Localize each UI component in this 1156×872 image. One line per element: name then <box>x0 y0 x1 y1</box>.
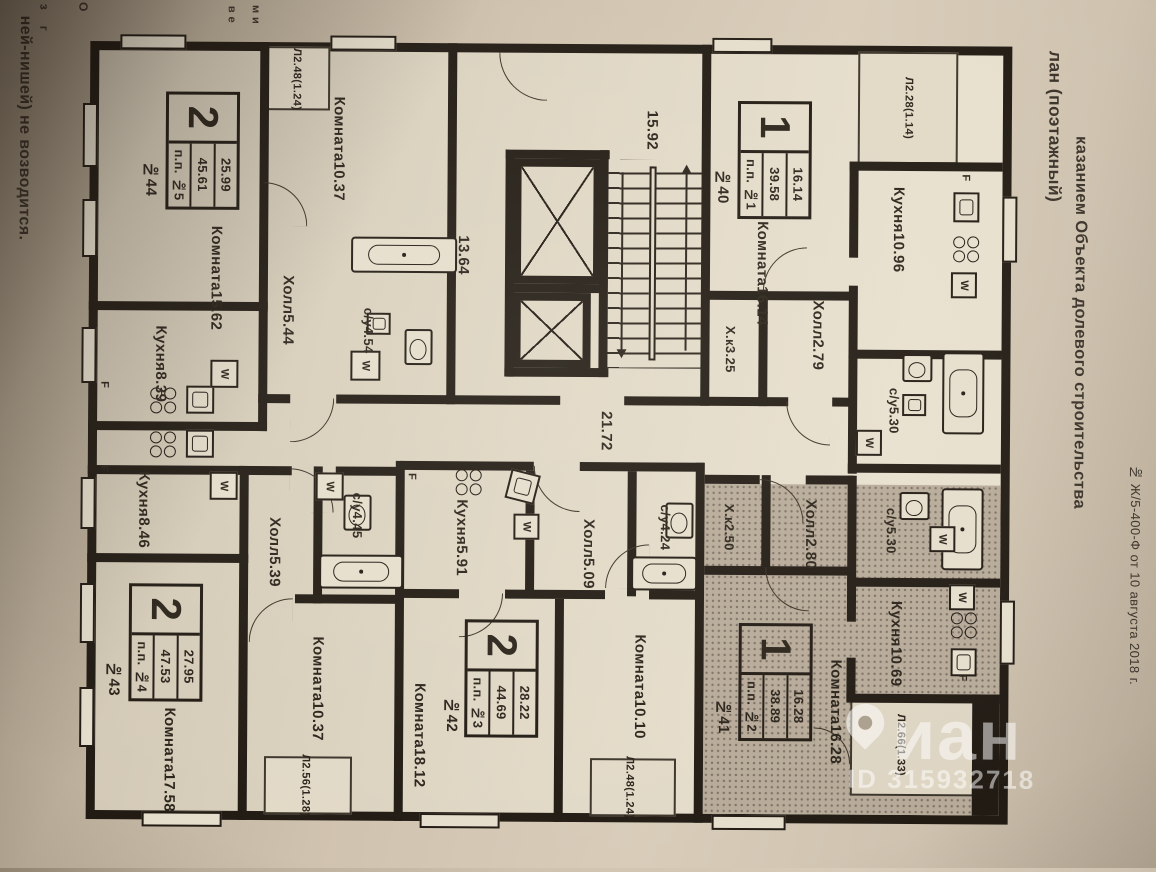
room-name: Комната <box>409 683 429 748</box>
balcony-letter: Л <box>622 756 635 764</box>
wall <box>850 162 1003 172</box>
apartment-badge-a40: 1 п.п. №1 39.58 16.14 <box>737 101 812 219</box>
wall <box>258 394 290 403</box>
cut-text-fragment: О <box>75 0 91 17</box>
lift-hall-area-label: 13.64 <box>451 221 475 289</box>
hall-label: Холл 5.39 <box>255 516 293 588</box>
room-area: 2.79 <box>808 340 828 371</box>
room-name: с/у <box>882 508 899 527</box>
balcony-label: Л 2.48 (1.24) <box>270 50 322 108</box>
fridge-icon: F <box>956 674 968 681</box>
room-name: Комната <box>752 221 772 286</box>
corridor-area-label: 21.72 <box>594 398 618 464</box>
bathtub <box>942 352 985 434</box>
room-name: с/у <box>348 493 365 512</box>
bathroom-label: с/у 4.54 <box>350 299 384 363</box>
apartment-badge-a42: 2 п.п. №3 44.69 28.22 <box>464 619 539 737</box>
room-area: 4.24 <box>656 524 673 551</box>
room-area: 10.37 <box>307 701 327 741</box>
room-name: Комната <box>206 225 226 290</box>
room-area: 18.12 <box>409 748 429 788</box>
room-label: Комната 10.37 <box>296 638 339 738</box>
room-label: Комната 15.62 <box>195 232 238 324</box>
washer-icon: W <box>929 526 955 552</box>
document-heading-line1: лан (поэтажный) <box>1041 3 1069 251</box>
room-area: 10.96 <box>888 233 908 273</box>
wall <box>505 590 605 600</box>
wall <box>849 162 859 258</box>
room-name: Кухня <box>151 325 171 371</box>
badge-total-area: 45.61 <box>190 144 214 207</box>
washer-icon: W <box>951 272 977 298</box>
room-name: Холл <box>578 519 598 558</box>
room-name: с/у <box>656 504 673 523</box>
elevator-shaft-small <box>512 293 590 368</box>
document-heading-line2: казанием Объекта долевого строительства <box>1065 3 1095 643</box>
bathtub <box>351 237 457 274</box>
room-area: 2.80 <box>800 539 820 570</box>
apartment-number-a40: №40 <box>709 153 735 219</box>
fridge-icon: F <box>960 174 972 181</box>
hall-label: Холл 5.44 <box>269 274 307 346</box>
room-name: Кухня <box>888 187 908 233</box>
badge-total-area: 47.53 <box>153 635 177 698</box>
balcony-label: Л 2.56 (1.28) <box>282 758 328 812</box>
wall <box>295 594 399 604</box>
badge-rooms-count: 1 <box>741 104 809 153</box>
balcony-coef: (1.24) <box>289 79 302 110</box>
fridge-icon: F <box>98 465 110 472</box>
kitchen-label: Кухня 8.46 <box>123 469 163 549</box>
apartment-badge-a41: 1 п.п. №2 38.89 16.28 <box>738 623 813 741</box>
room-name: Холл <box>264 517 284 556</box>
hall-label: Холл 2.79 <box>798 299 836 371</box>
window-mark <box>82 199 97 257</box>
room-name: Кухня <box>886 601 906 647</box>
room-name: Холл <box>808 300 828 339</box>
hall-label: Холл 5.09 <box>569 518 607 590</box>
kitchen-sink <box>186 386 214 414</box>
badge-total-area: 39.58 <box>762 153 786 216</box>
room-name: Кухня <box>134 471 154 517</box>
room-area: 2.50 <box>720 523 737 550</box>
room-area: 5.44 <box>278 314 298 345</box>
badge-unit: п.п. №2 <box>741 675 763 738</box>
badge-unit: п.п. №5 <box>168 143 190 206</box>
wall <box>504 368 608 378</box>
pantry-label: Х.к 2.50 <box>709 493 747 561</box>
room-area: 5.30 <box>882 527 899 554</box>
apartment-badge-a44: 2 п.п. №5 45.61 25.99 <box>165 91 240 209</box>
floor-plan-photo: W W W W W W W W W F F F F F 2 п.п. №5 45… <box>0 0 1156 872</box>
badge-total-area: 44.69 <box>488 671 512 734</box>
fridge-icon: F <box>98 381 110 388</box>
apartment-number-a41: №41 <box>710 683 736 749</box>
cut-text-fragment: м и <box>248 0 262 32</box>
hall-label: Холл 2.80 <box>791 499 829 569</box>
room-label: Комната 17.58 <box>148 709 191 809</box>
bathroom-label: с/у 5.30 <box>876 378 910 444</box>
room-area: 17.58 <box>159 772 179 812</box>
wall <box>87 553 248 563</box>
room-name: Х.к <box>720 503 737 523</box>
window-mark <box>712 38 772 53</box>
fridge-icon: F <box>406 473 418 480</box>
balcony-letter: Л <box>290 48 303 56</box>
wall <box>399 589 459 598</box>
balcony-coef: (1.24) <box>622 787 635 818</box>
cut-text-fragment: г <box>36 21 50 37</box>
window-mark <box>81 327 96 383</box>
room-area: 16.14 <box>752 286 772 326</box>
wall <box>336 467 400 476</box>
washer-icon: W <box>210 360 238 388</box>
window-mark <box>80 583 95 643</box>
room-name: Кухня <box>452 499 472 545</box>
wall <box>806 475 854 484</box>
balcony-area: 2.28 <box>901 85 914 108</box>
room-name: Комната <box>825 659 845 724</box>
apartment-number-a44: №44 <box>137 145 163 211</box>
wall <box>336 395 560 405</box>
cut-text-fragment: з <box>37 0 51 15</box>
wall <box>847 476 857 622</box>
pantry-label: Х.к 3.25 <box>710 315 748 383</box>
window-mark <box>330 35 396 50</box>
apartment-number-a43: №43 <box>100 645 126 711</box>
wall <box>554 599 564 822</box>
room-name: Х.к <box>721 325 738 345</box>
room-label: Комната 16.14 <box>741 227 784 319</box>
room-name: с/у <box>359 308 376 327</box>
badge-unit: п.п. №4 <box>131 635 153 698</box>
elevator-shaft-large <box>513 159 602 285</box>
room-area: 10.10 <box>629 699 649 739</box>
window-mark <box>1000 601 1015 665</box>
room-area: 10.37 <box>329 161 349 201</box>
window-mark <box>83 103 98 167</box>
bathroom-label: с/у 5.30 <box>873 498 907 564</box>
room-area: 4.45 <box>348 512 365 539</box>
room-name: с/у <box>885 388 902 407</box>
bathtub <box>631 556 697 590</box>
room-label: Комната 18.12 <box>398 663 441 807</box>
room-area: 3.25 <box>721 345 738 372</box>
window-mark <box>79 687 94 747</box>
badge-living-area: 25.99 <box>213 144 237 207</box>
kitchen-sink <box>951 648 977 676</box>
room-name: Комната <box>329 96 349 161</box>
room-area: 15.62 <box>206 291 226 331</box>
wall <box>89 301 268 311</box>
toilet <box>404 329 432 365</box>
room-area: 5.30 <box>885 407 902 434</box>
washer-icon: W <box>513 514 539 540</box>
room-label: Комната 10.37 <box>317 102 360 194</box>
window-mark <box>1002 197 1017 263</box>
cut-text-fragment: в е <box>224 0 238 32</box>
room-area: 16.28 <box>825 724 845 764</box>
room-label: Комната 10.10 <box>618 634 661 738</box>
room-area: 8.39 <box>150 371 170 402</box>
wall <box>88 421 267 431</box>
room-name: Комната <box>630 634 650 699</box>
window-mark <box>142 811 222 826</box>
stove-icon <box>953 236 979 262</box>
badge-rooms-count: 2 <box>132 586 200 635</box>
balcony-coef: (1.14) <box>901 108 914 139</box>
room-area: 5.91 <box>451 545 471 576</box>
balcony-letter: Л <box>298 754 311 762</box>
badge-rooms-count: 2 <box>468 622 536 671</box>
room-name: Комната <box>159 707 179 772</box>
apartment-number-a42: №42 <box>438 681 464 747</box>
balcony-area: 2.56 <box>298 762 311 785</box>
balcony-area: 2.48 <box>290 56 303 79</box>
kitchen-label: Кухня 10.69 <box>874 600 917 688</box>
wall <box>88 465 292 475</box>
badge-unit: п.п. №3 <box>467 671 489 734</box>
badge-unit: п.п. №1 <box>740 153 762 216</box>
wall <box>848 464 1001 474</box>
wall <box>704 397 788 407</box>
kitchen-label: Кухня 5.91 <box>441 497 481 577</box>
wall <box>259 42 270 310</box>
badge-rooms-count: 1 <box>742 626 810 675</box>
balcony-coef: (1.28) <box>298 785 311 816</box>
balcony-area: 2.48 <box>622 764 635 787</box>
badge-living-area: 28.22 <box>512 672 536 735</box>
kitchen-sink <box>186 430 214 458</box>
stair-rail <box>648 166 656 360</box>
room-name: Комната <box>308 636 328 701</box>
washer-icon: W <box>210 472 238 500</box>
badge-rooms-count: 2 <box>169 94 237 143</box>
bathroom-label: с/у 4.45 <box>339 483 373 549</box>
balcony-letter: Л <box>902 77 915 85</box>
kitchen-label: Кухня 8.39 <box>140 325 180 401</box>
room-name: Холл <box>801 499 821 538</box>
badge-living-area: 16.28 <box>786 675 810 738</box>
room-area: 8.46 <box>134 517 154 548</box>
wall <box>258 310 268 431</box>
bathroom-label: с/у 4.24 <box>647 494 681 560</box>
wall <box>624 396 704 405</box>
watermark-brand: иан <box>892 700 1023 771</box>
stove-icon <box>150 431 176 457</box>
room-area: 10.69 <box>886 647 906 687</box>
balcony-label: Л 2.28 (1.14) <box>882 78 934 138</box>
badge-living-area: 16.14 <box>785 153 809 216</box>
window-mark <box>712 815 786 830</box>
kitchen-label: Кухня 10.96 <box>877 186 920 274</box>
wall <box>847 578 1000 588</box>
stairwell-area-label: 15.92 <box>640 96 664 164</box>
window-mark <box>80 477 95 529</box>
room-area: 5.09 <box>578 558 598 589</box>
window-mark <box>120 34 186 49</box>
badge-living-area: 27.95 <box>176 636 200 699</box>
room-name: Холл <box>278 275 298 314</box>
stove-icon <box>951 612 977 638</box>
left-margin-note: ней-нишей) не возводится. <box>7 0 41 259</box>
badge-total-area: 38.89 <box>762 675 786 738</box>
room-area: 4.54 <box>359 327 376 354</box>
window-mark <box>420 813 500 828</box>
wall <box>705 475 760 484</box>
room-area: 5.39 <box>264 556 284 587</box>
watermark-id: ID 315932718 <box>848 766 1036 793</box>
washer-icon: W <box>949 584 975 610</box>
kitchen-sink <box>953 192 979 222</box>
apartment-badge-a43: 2 п.п. №4 47.53 27.95 <box>128 583 203 701</box>
document-reference: № Ж/5-400-Ф от 10 августа 2018 г. <box>1121 285 1147 863</box>
balcony-label: Л 2.48 (1.24) <box>606 760 652 814</box>
bathtub <box>319 554 403 589</box>
stove-icon <box>456 469 482 495</box>
